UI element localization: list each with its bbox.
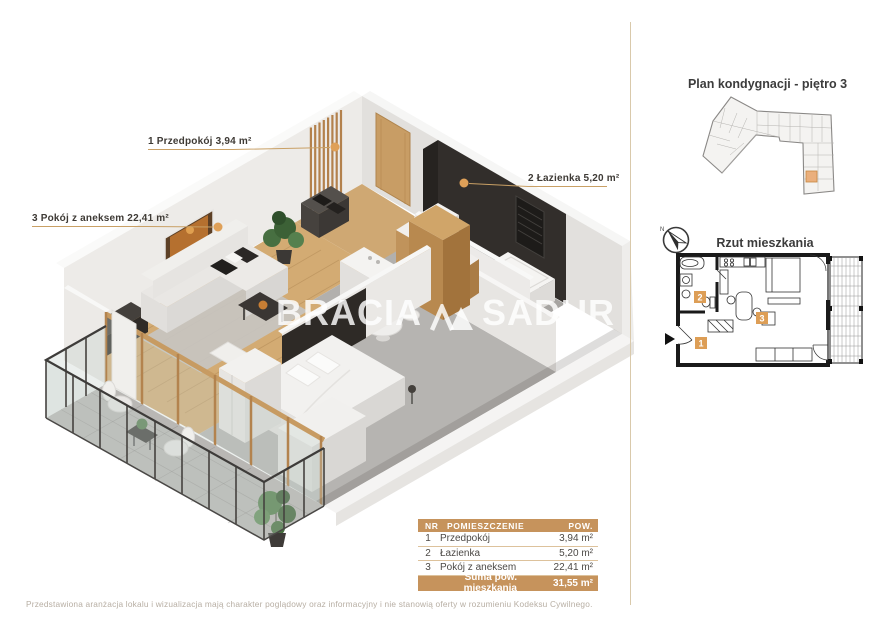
table-total-row: Suma pow. mieszkania 31,55 m² — [418, 576, 598, 591]
header-area: POW. — [541, 521, 598, 531]
header-room: POMIESZCZENIE — [445, 521, 541, 531]
unit-plan-title: Rzut mieszkania — [690, 236, 840, 250]
room-label-przedpokoj: 1 Przedpokój 3,94 m² — [148, 136, 251, 147]
leader-dot-lazienka — [460, 179, 469, 188]
plan-balcony — [828, 256, 863, 364]
row-nr: 2 — [418, 548, 438, 559]
table-row: 1 Przedpokój 3,94 m² — [418, 532, 598, 547]
plan-walls — [676, 253, 830, 367]
leader-dot-pokoj — [214, 223, 223, 232]
total-area: 31,55 m² — [541, 578, 598, 589]
row-area: 22,41 m² — [541, 562, 598, 573]
building-plan-title: Plan kondygnacji - piętro 3 — [670, 77, 865, 91]
leader-dot-przedpokoj — [331, 143, 340, 152]
page: { "plan3d": { "labels": [ {"text": "1 Pr… — [0, 0, 894, 632]
compass-n-label: N — [660, 227, 664, 233]
svg-text:1: 1 — [698, 339, 703, 349]
bedside-lamp — [408, 385, 416, 393]
table-header: NR POMIESZCZENIE POW. — [418, 519, 598, 532]
svg-text:3: 3 — [759, 314, 764, 324]
row-room: Łazienka — [438, 548, 541, 559]
footer-disclaimer: Przedstawiona aranżacja lokalu i wizuali… — [26, 599, 601, 609]
building-plan — [700, 95, 840, 203]
entry-arrow-icon — [665, 333, 675, 345]
total-label: Suma pow. mieszkania — [418, 572, 541, 594]
highlighted-unit — [806, 171, 817, 182]
room-label-pokoj: 3 Pokój z aneksem 22,41 m² — [32, 213, 169, 224]
row-area: 3,94 m² — [541, 533, 598, 544]
unit-plan-2d: 1 2 3 — [660, 250, 866, 372]
row-room: Przedpokój — [438, 533, 541, 544]
svg-text:2: 2 — [697, 293, 702, 303]
area-table: NR POMIESZCZENIE POW. 1 Przedpokój 3,94 … — [418, 519, 598, 591]
room-label-lazienka: 2 Łazienka 5,20 m² — [528, 173, 619, 184]
header-nr: NR — [418, 521, 445, 531]
row-area: 5,20 m² — [541, 548, 598, 559]
table-row: 2 Łazienka 5,20 m² — [418, 547, 598, 562]
row-nr: 1 — [418, 533, 438, 544]
panel-divider — [630, 22, 631, 605]
